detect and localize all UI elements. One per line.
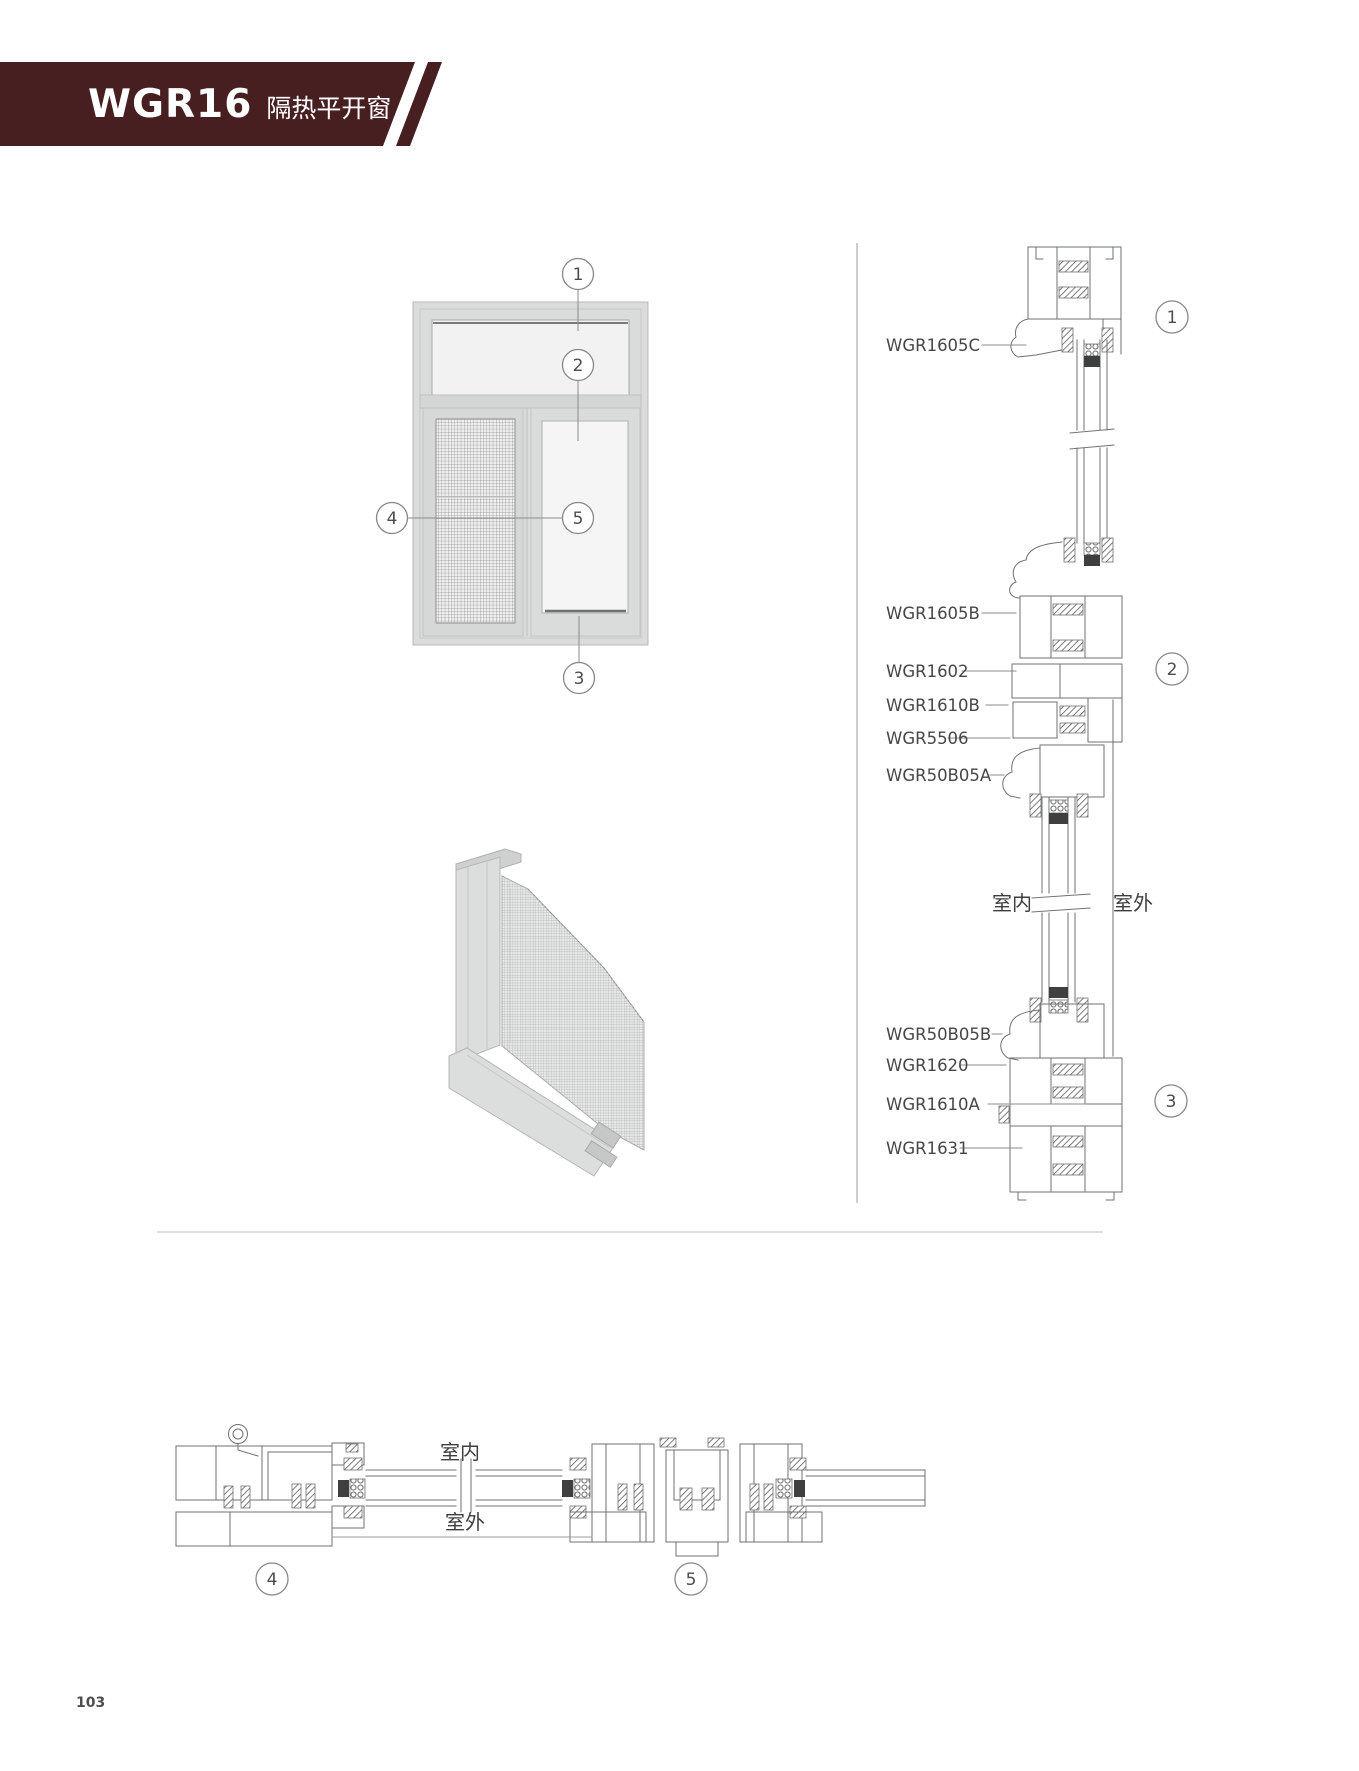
glass-break-mark [1032, 894, 1090, 898]
head-frame-profile [1011, 247, 1121, 357]
part-label: WGR5506 [886, 729, 969, 748]
elevation-callout-2: 2 [563, 350, 594, 381]
hinge-ring [229, 1425, 248, 1444]
glass-run [366, 1459, 562, 1512]
section-callout-4: 4 [256, 1563, 288, 1595]
callout-number: 4 [387, 509, 398, 529]
transom-glass-panel [432, 320, 629, 395]
callout-number: 5 [573, 509, 584, 529]
transom-glass-unit [1070, 340, 1114, 543]
vertical-section-part-labels: WGR1605C WGR1605B WGR1602 WGR1610B WGR55… [886, 336, 992, 1158]
callout-number: 3 [574, 669, 585, 689]
section-callout-1: 1 [1156, 301, 1188, 333]
callout-number: 5 [686, 1570, 697, 1590]
sill-junction-profiles [999, 998, 1122, 1200]
elevation-callout-5: 5 [563, 503, 594, 534]
part-label: WGR50B05A [886, 766, 992, 785]
casement-glass-unit [1032, 700, 1113, 1056]
part-label: WGR1602 [886, 662, 969, 681]
callout-number: 3 [1166, 1092, 1177, 1112]
callout-number: 1 [1167, 308, 1178, 328]
middle-mullion-assembly [562, 1438, 822, 1556]
part-label: WGR1631 [886, 1139, 969, 1158]
section-callout-3: 3 [1155, 1085, 1187, 1117]
page-number: 103 [76, 1695, 105, 1711]
glass-bar-right [806, 1470, 925, 1506]
elevation-callout-4: 4 [377, 503, 408, 534]
transom-junction-profiles [1003, 538, 1122, 817]
hinge-ring [233, 1429, 243, 1439]
indoor-label: 室内 [992, 891, 1032, 915]
technical-drawing-sheet: 1 2 4 5 3 [0, 0, 1359, 1771]
left-frame-assembly [176, 1425, 364, 1547]
part-label: WGR1605B [886, 604, 980, 623]
window-elevation: 1 2 4 5 3 [377, 259, 649, 694]
section-callout-5: 5 [675, 1563, 707, 1595]
callout-number: 1 [573, 265, 584, 285]
outdoor-label: 室外 [445, 1510, 485, 1534]
callout-number: 4 [267, 1570, 278, 1590]
transom-bar [420, 395, 641, 408]
catalog-page: WGR16 隔热平开窗 [0, 0, 1359, 1771]
part-label: WGR1605C [886, 336, 980, 355]
insect-screen-mesh [436, 419, 515, 623]
part-label: WGR1620 [886, 1056, 969, 1075]
callout-number: 2 [573, 356, 584, 376]
elevation-callout-1: 1 [563, 259, 594, 290]
callout-number: 2 [1167, 660, 1178, 680]
section-callout-2: 2 [1156, 653, 1188, 685]
glass-break-mark [1032, 908, 1090, 912]
part-label: WGR1610B [886, 696, 980, 715]
vertical-jamb-profile [456, 857, 500, 1062]
elevation-callout-3: 3 [564, 663, 595, 694]
horizontal-section-drawing: 室内 室外 4 5 [176, 1425, 925, 1596]
part-label: WGR1610A [886, 1095, 981, 1114]
part-label: WGR50B05B [886, 1025, 991, 1044]
isometric-corner-detail [449, 849, 644, 1176]
outdoor-label: 室外 [1113, 891, 1153, 915]
glazing-left-end [338, 1458, 365, 1518]
vertical-section-drawing: WGR1605C WGR1605B WGR1602 WGR1610B WGR55… [886, 247, 1188, 1200]
indoor-label: 室内 [440, 1440, 480, 1464]
